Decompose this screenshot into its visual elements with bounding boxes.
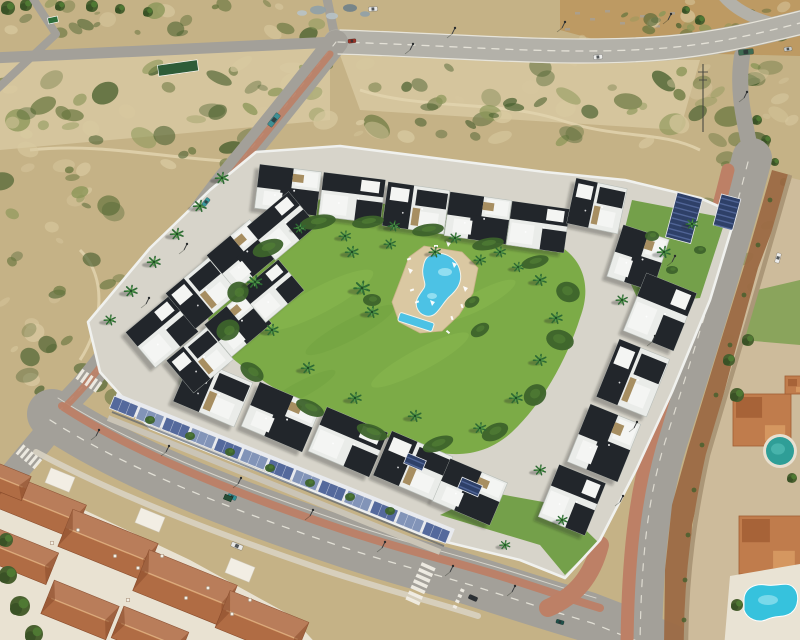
chimney [206, 586, 209, 589]
apartment-building [506, 201, 570, 253]
weeds [700, 443, 705, 448]
apartment-building [444, 192, 512, 244]
weeds [686, 533, 691, 538]
construction-debris [310, 6, 326, 15]
chimney [248, 598, 251, 601]
weeds [692, 488, 697, 493]
weeds [683, 578, 688, 583]
construction-debris [297, 10, 307, 16]
weeds [714, 393, 719, 398]
vehicle [368, 6, 377, 11]
aerial-photograph [0, 0, 800, 640]
chimney [160, 554, 163, 557]
neighbor-building [739, 516, 800, 574]
neighbor-building [785, 376, 800, 394]
chimney [230, 612, 233, 615]
chimney [113, 554, 116, 557]
vehicle [784, 47, 792, 52]
weeds [682, 618, 687, 623]
construction-debris [360, 11, 370, 17]
weeds [768, 198, 773, 203]
weeds [728, 343, 733, 348]
chimney [126, 598, 129, 601]
aerial-photo-canvas [0, 0, 800, 640]
construction-debris [343, 4, 357, 12]
chimney [50, 541, 53, 544]
weeds [742, 293, 747, 298]
chimney [136, 566, 139, 569]
vehicle [348, 39, 356, 44]
vehicle [593, 54, 602, 59]
weeds [756, 243, 761, 248]
chimney [184, 596, 187, 599]
construction-debris [326, 13, 338, 20]
chimney [76, 528, 79, 531]
